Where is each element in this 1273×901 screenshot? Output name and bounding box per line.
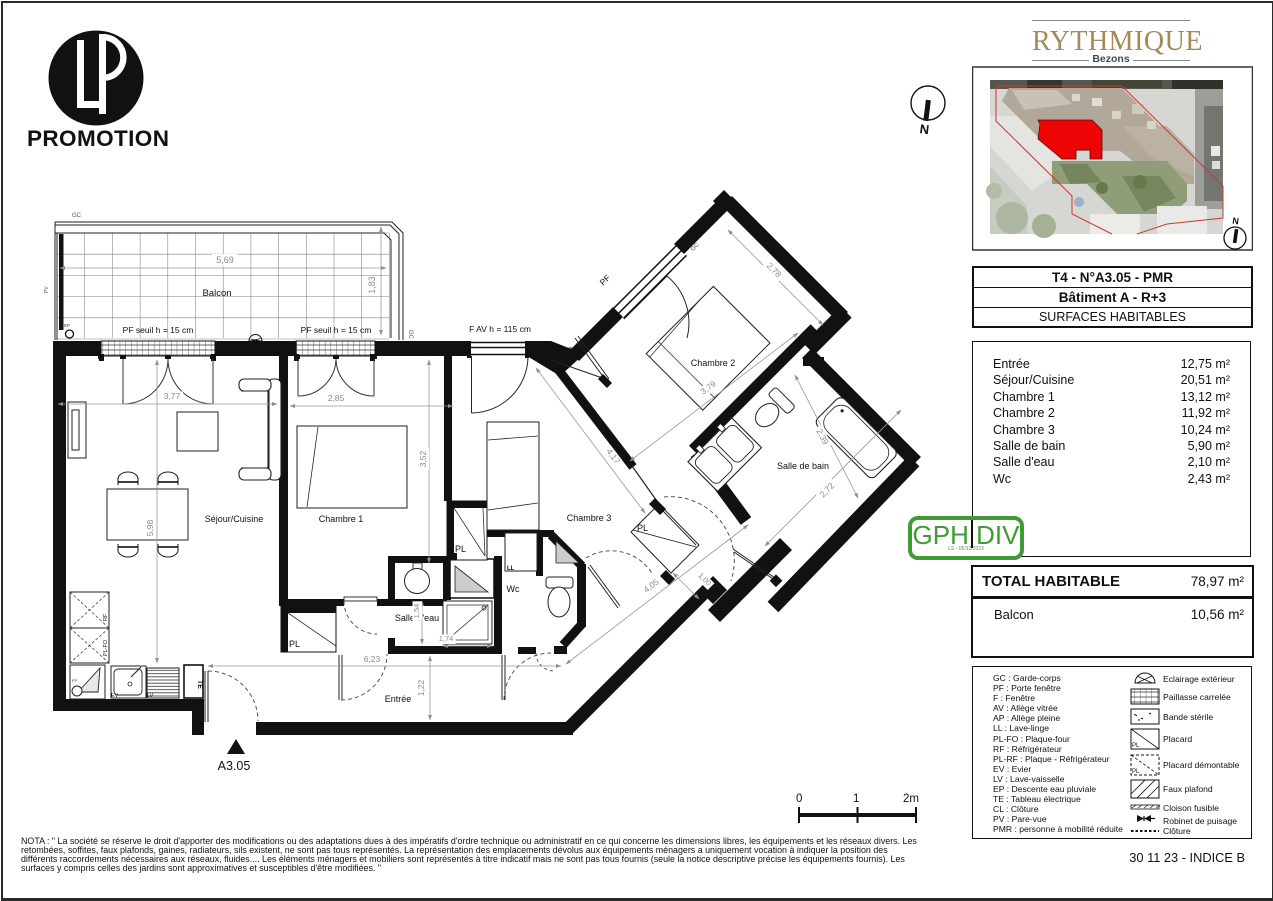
svg-text:Robinet de puisage: Robinet de puisage — [1163, 816, 1237, 826]
svg-text:Bande stérile: Bande stérile — [1163, 712, 1213, 722]
svg-text:Placard démontable: Placard démontable — [1163, 760, 1240, 770]
svg-text:6,23: 6,23 — [364, 654, 381, 664]
svg-text:3,77: 3,77 — [164, 391, 181, 401]
svg-text:TE: TE — [196, 680, 203, 689]
svg-text:Placard: Placard — [1163, 734, 1192, 744]
svg-text:Chambre 3: Chambre 3 — [567, 513, 612, 523]
svg-text:Faux plafond: Faux plafond — [1163, 784, 1213, 794]
svg-text:5,98: 5,98 — [145, 519, 155, 536]
svg-text:1,74: 1,74 — [439, 634, 454, 643]
svg-text:PV: PV — [44, 286, 50, 293]
svg-text:PL-FO: PL-FO — [103, 639, 109, 656]
svg-text:Eclairage extérieur: Eclairage extérieur — [1163, 674, 1235, 684]
svg-text:GC: GC — [407, 330, 413, 340]
svg-text:1: 1 — [853, 793, 859, 805]
svg-text:Wc: Wc — [507, 584, 520, 594]
svg-text:Séjour/Cuisine: Séjour/Cuisine — [205, 514, 264, 524]
svg-text:Entrée: Entrée — [385, 694, 412, 704]
svg-text:Chambre 1: Chambre 1 — [319, 514, 364, 524]
svg-text:LL: LL — [507, 566, 515, 572]
svg-text:5,69: 5,69 — [216, 255, 234, 265]
svg-text:EP: EP — [64, 323, 70, 328]
svg-text:Paillasse carrelée: Paillasse carrelée — [1163, 692, 1231, 702]
svg-text:RF: RF — [103, 613, 109, 621]
svg-text:N: N — [1232, 216, 1240, 227]
svg-text:Balcon: Balcon — [202, 288, 231, 299]
svg-text:PL: PL — [568, 346, 579, 356]
svg-text:PF seuil h = 15 cm: PF seuil h = 15 cm — [301, 325, 372, 335]
svg-text:GC: GC — [72, 213, 82, 219]
svg-text:1,54: 1,54 — [412, 604, 421, 619]
svg-text:2m: 2m — [903, 793, 919, 805]
svg-text:PL: PL — [637, 523, 648, 533]
svg-text:FP: FP — [72, 678, 77, 683]
svg-text:1,22: 1,22 — [416, 679, 426, 696]
svg-text:Salle de bain: Salle de bain — [777, 461, 829, 471]
svg-text:F AV h = 115 cm: F AV h = 115 cm — [469, 324, 531, 334]
svg-text:EV: EV — [111, 693, 119, 699]
svg-text:2,85: 2,85 — [328, 393, 345, 403]
svg-text:PF: PF — [598, 273, 613, 288]
svg-text:PL: PL — [1132, 743, 1140, 749]
svg-text:PL: PL — [455, 544, 466, 554]
svg-text:PROMOTION: PROMOTION — [27, 126, 169, 151]
svg-text:PL: PL — [289, 639, 300, 649]
svg-text:Cloison fusible: Cloison fusible — [1163, 803, 1219, 813]
svg-text:Chambre 2: Chambre 2 — [691, 358, 736, 368]
svg-text:LV: LV — [147, 693, 154, 699]
svg-text:PL: PL — [1132, 769, 1140, 775]
svg-text:A3.05: A3.05 — [218, 759, 251, 773]
svg-text:0: 0 — [796, 793, 802, 805]
svg-text:Clôture: Clôture — [1163, 826, 1191, 836]
svg-text:1,83: 1,83 — [367, 276, 377, 294]
svg-text:N: N — [919, 121, 930, 136]
svg-text:PF seuil h = 15 cm: PF seuil h = 15 cm — [123, 325, 194, 335]
svg-text:3,52: 3,52 — [418, 450, 428, 467]
